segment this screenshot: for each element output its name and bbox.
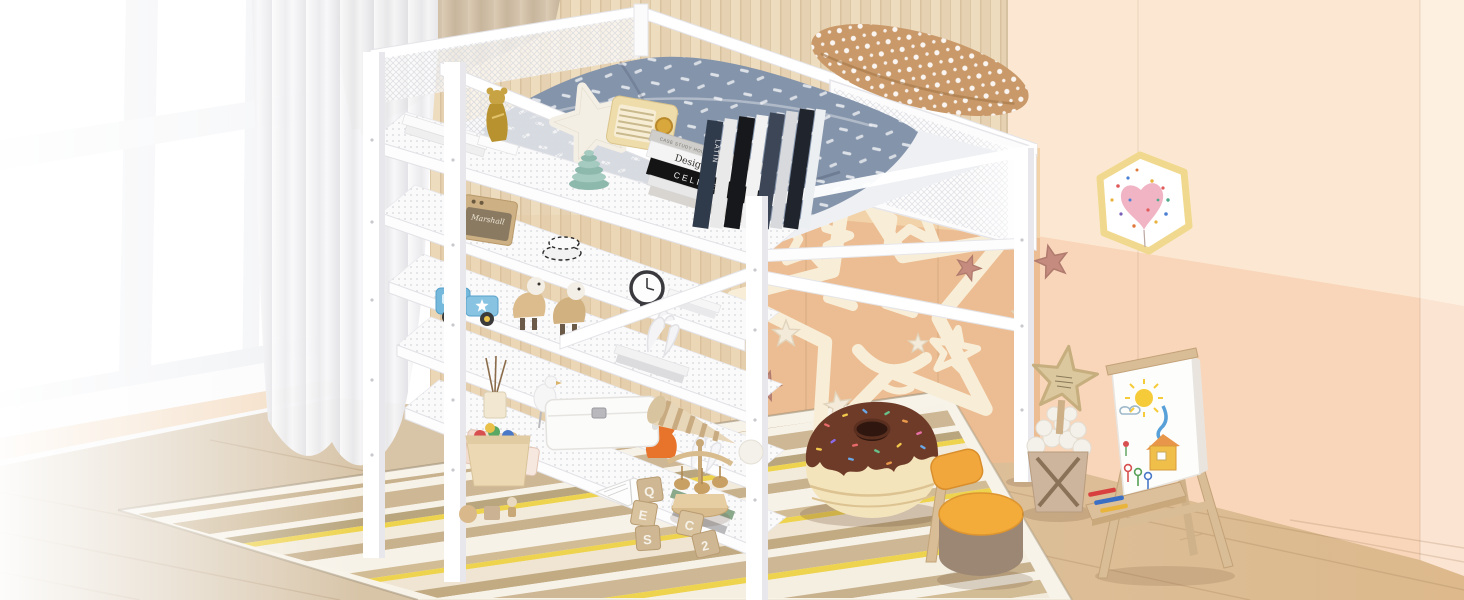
- block-letter: Q: [643, 483, 655, 499]
- block-letter: S: [643, 532, 653, 548]
- wall-corner-strip: [1420, 0, 1464, 600]
- post-center: [746, 196, 768, 600]
- storage-case: [545, 396, 659, 450]
- chair-seat: [939, 493, 1023, 535]
- marshall-speaker: Marshall: [458, 194, 518, 246]
- kids-room-photo: CASE STUDY HOUSES Design CELINE LATIN: [0, 0, 1464, 600]
- post-second: [444, 62, 466, 582]
- post-left: [363, 52, 385, 558]
- heart-hexagon-plaque: [1100, 155, 1189, 251]
- room-scene: CASE STUDY HOUSES Design CELINE LATIN: [0, 0, 1464, 600]
- window-glow: [0, 0, 360, 600]
- easel-board: [1112, 356, 1200, 496]
